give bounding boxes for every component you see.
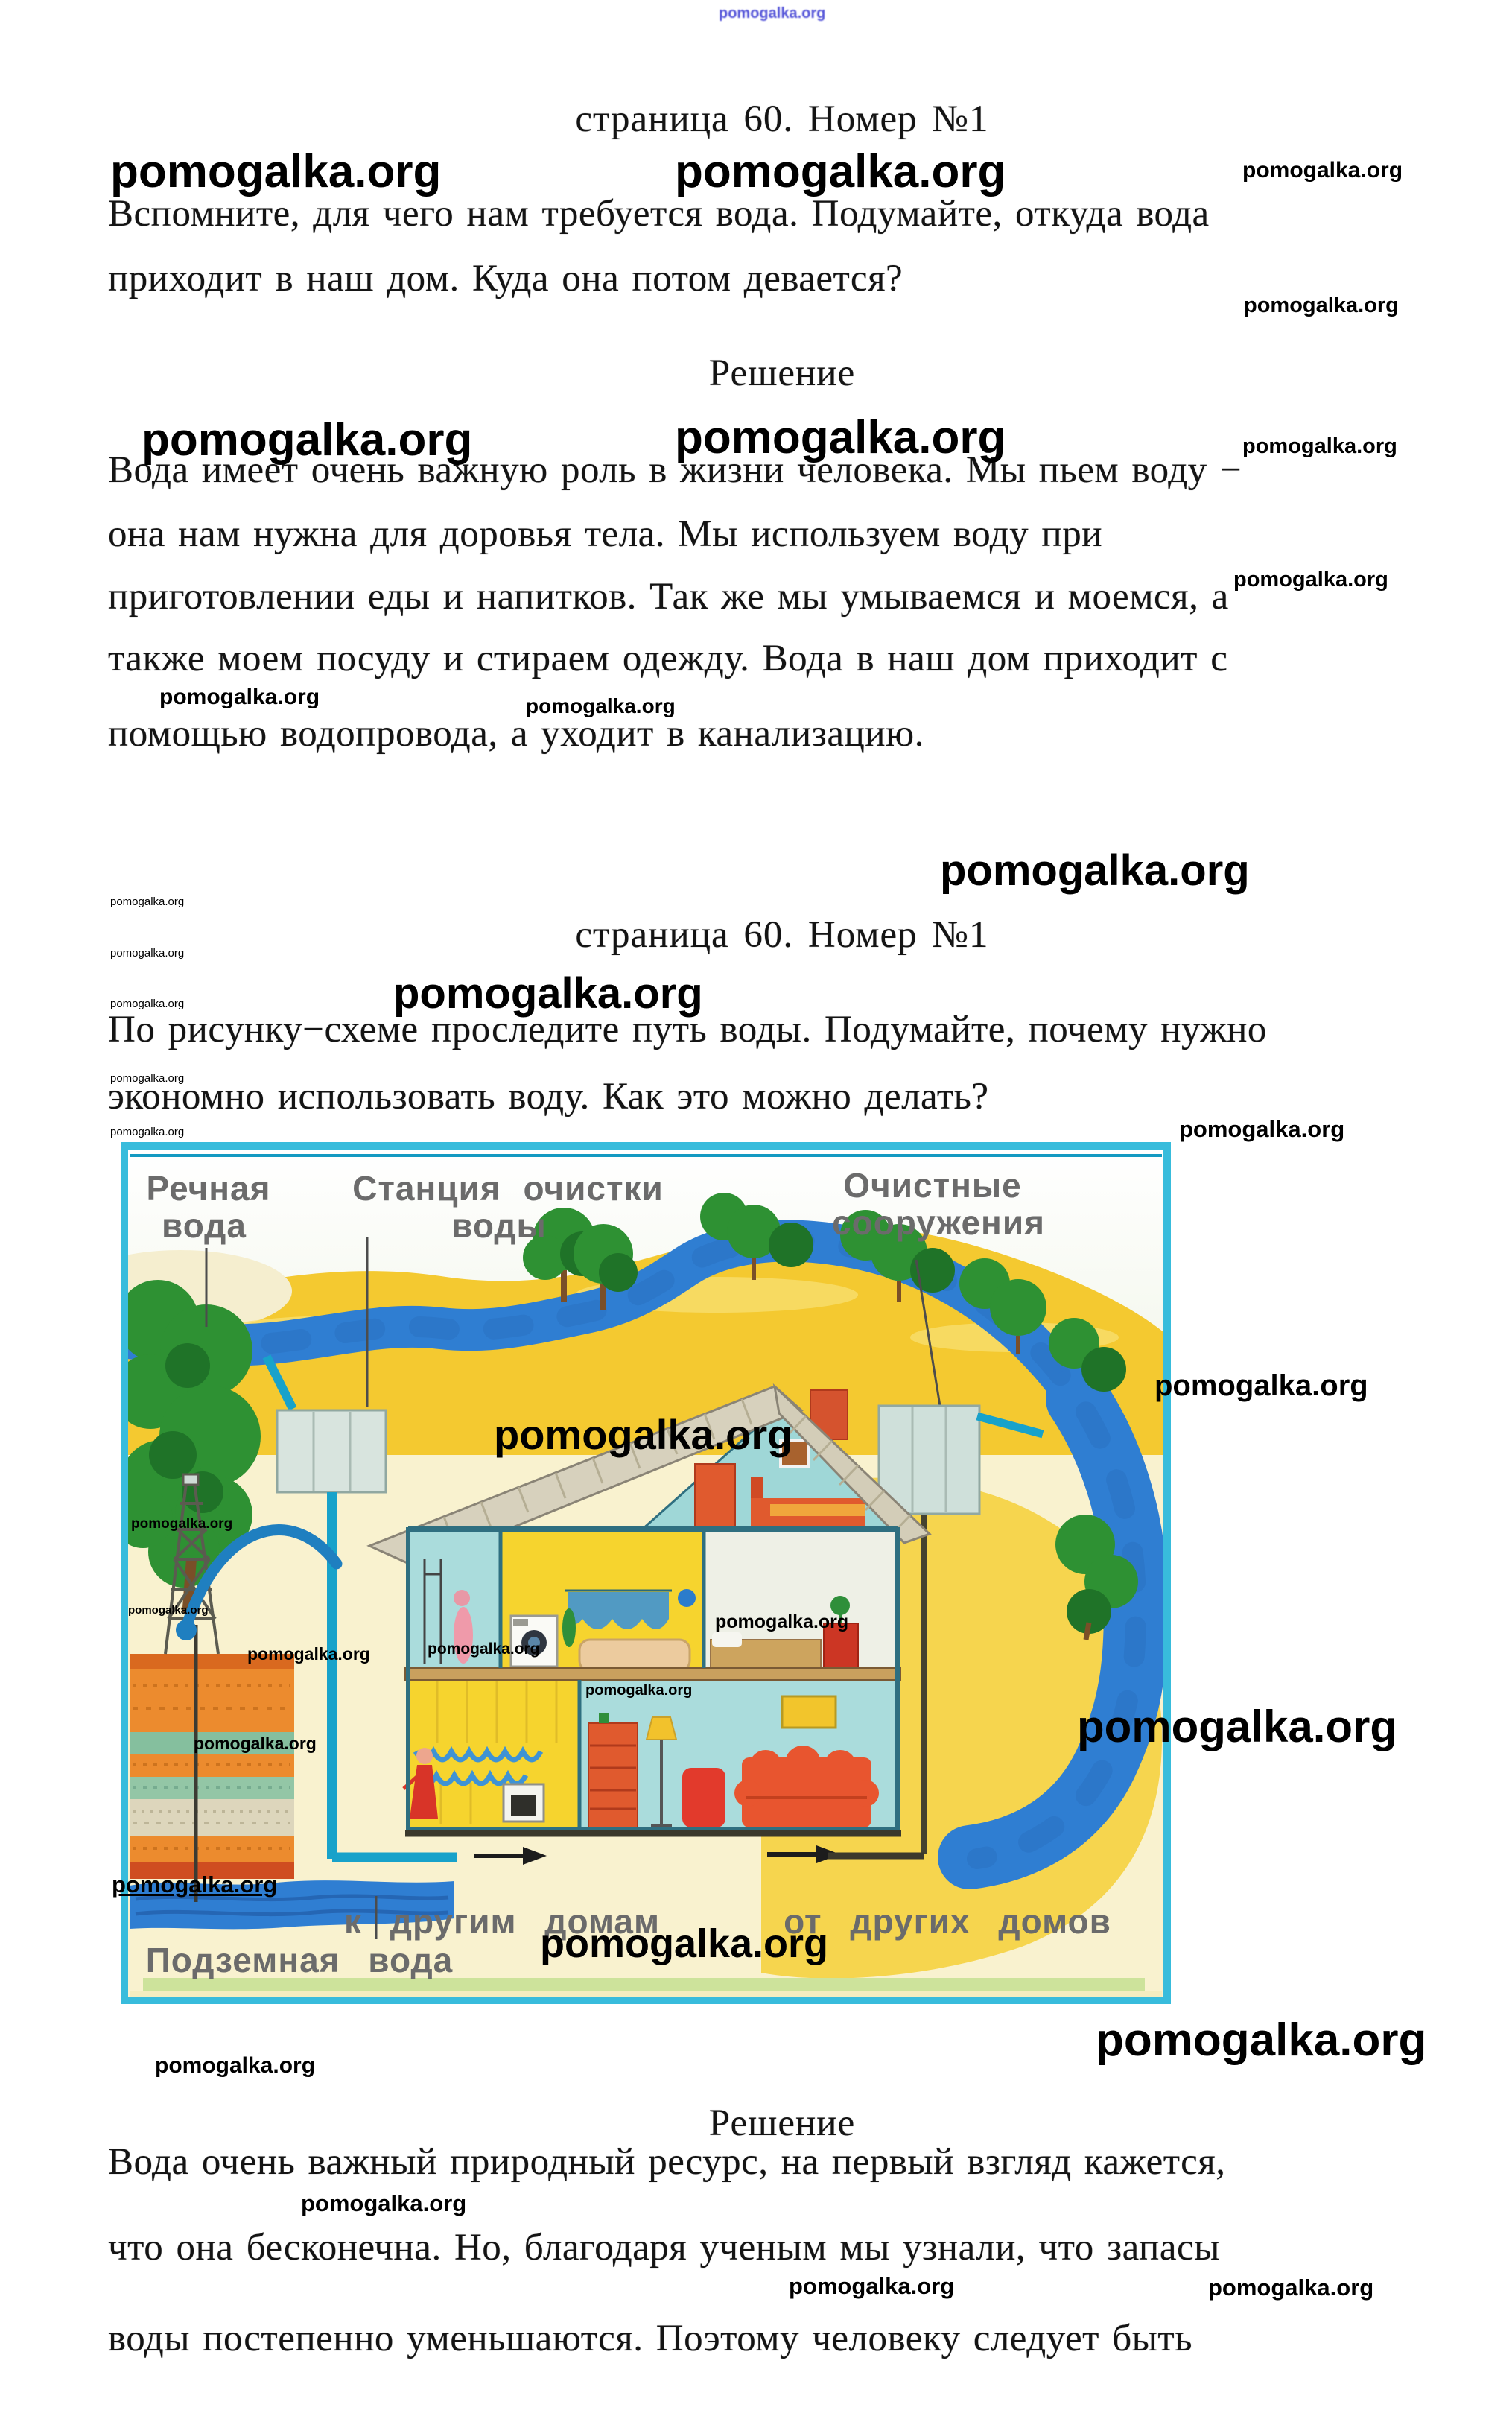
attic-wardrobe	[695, 1464, 735, 1528]
section1-heading: страница 60. Номер №1	[52, 101, 1512, 139]
answer-line: воды постепенно уменьшаются. Поэтому чел…	[108, 2320, 1192, 2358]
question-line: Вспомните, для чего нам требуется вода. …	[108, 195, 1210, 233]
solution-heading: Решение	[52, 355, 1512, 393]
wall-picture	[782, 1696, 836, 1728]
label-river-water: Речная	[147, 1169, 271, 1208]
answer-line: она нам нужна для доровья тела. Мы испол…	[108, 516, 1102, 554]
label-water-station: Станция очистки	[352, 1169, 664, 1208]
answer-line: Вода очень важный природный ресурс, на п…	[108, 2143, 1225, 2181]
svg-text:сооружения: сооружения	[832, 1203, 1045, 1242]
watermark-text: pomogalka.org	[719, 6, 825, 21]
watermark-text: pomogalka.org	[675, 149, 1006, 195]
watermark-text: pomogalka.org	[301, 2192, 466, 2215]
solution-heading: Решение	[52, 2105, 1512, 2143]
section2-heading: страница 60. Номер №1	[52, 916, 1512, 954]
question-line: экономно использовать воду. Как это можн…	[108, 1078, 989, 1116]
watermark-text: pomogalka.org	[159, 686, 320, 708]
label-underground-water: Подземная вода	[146, 1941, 454, 1979]
watermark-text: pomogalka.org	[110, 149, 441, 195]
label-from-other-houses: от других домов	[784, 1902, 1111, 1941]
answer-line: Вода имеет очень важную роль в жизни чел…	[108, 451, 1242, 489]
svg-text:вода: вода	[162, 1206, 247, 1245]
watermark-text: pomogalka.org	[1179, 1117, 1344, 1141]
watermark-text: pomogalka.org	[1208, 2276, 1373, 2299]
watermark-text: pomogalka.org	[940, 849, 1250, 893]
underground-strata	[130, 1654, 294, 1879]
answer-line: что она бесконечна. Но, благодаря ученым…	[108, 2229, 1220, 2267]
watermark-text: pomogalka.org	[1096, 2017, 1426, 2064]
label-treatment-plant: Очистные	[843, 1166, 1022, 1205]
bookshelf	[588, 1723, 638, 1829]
question-line: приходит в наш дом. Куда она потом девае…	[108, 260, 903, 298]
svg-text:воды: воды	[451, 1206, 547, 1245]
answer-line: приготовлении еды и напитков. Так же мы …	[108, 578, 1229, 616]
label-to-other-houses: к другим домам	[344, 1902, 660, 1941]
watermark-text: pomogalka.org	[110, 896, 184, 907]
watermark-text: pomogalka.org	[110, 1126, 184, 1138]
answer-line: помощью водопровода, а уходит в канализа…	[108, 715, 924, 753]
person-shower	[454, 1590, 470, 1606]
answer-line: также моем посуду и стираем одежду. Вода…	[108, 640, 1227, 678]
armchair	[682, 1768, 725, 1827]
watermark-text: pomogalka.org	[789, 2274, 954, 2298]
watermark-text: pomogalka.org	[1242, 159, 1403, 182]
watermark-text: pomogalka.org	[1154, 1371, 1368, 1401]
question-line: По рисунку−схеме проследите путь воды. П…	[108, 1011, 1267, 1049]
floor-lamp	[647, 1717, 676, 1740]
sofa	[742, 1757, 871, 1827]
attic-picture	[781, 1440, 809, 1467]
bottom-strip	[130, 1991, 1162, 1997]
watermark-text: pomogalka.org	[1242, 436, 1397, 457]
bathtub	[579, 1640, 690, 1671]
watermark-text: pomogalka.org	[1233, 569, 1388, 591]
watermark-text: pomogalka.org	[155, 2055, 315, 2077]
person-kitchen	[416, 1748, 433, 1764]
watermark-text: pomogalka.org	[110, 998, 184, 1009]
document-page: страница 60. Номер №1 Вспомните, для чег…	[0, 0, 1512, 2419]
nightstand	[824, 1623, 858, 1673]
watermark-text: pomogalka.org	[1244, 295, 1399, 317]
grass-strip	[143, 1978, 1145, 1991]
figure-water-path-diagram: Речная вода Станция очистки воды Очистны…	[121, 1142, 1171, 2004]
